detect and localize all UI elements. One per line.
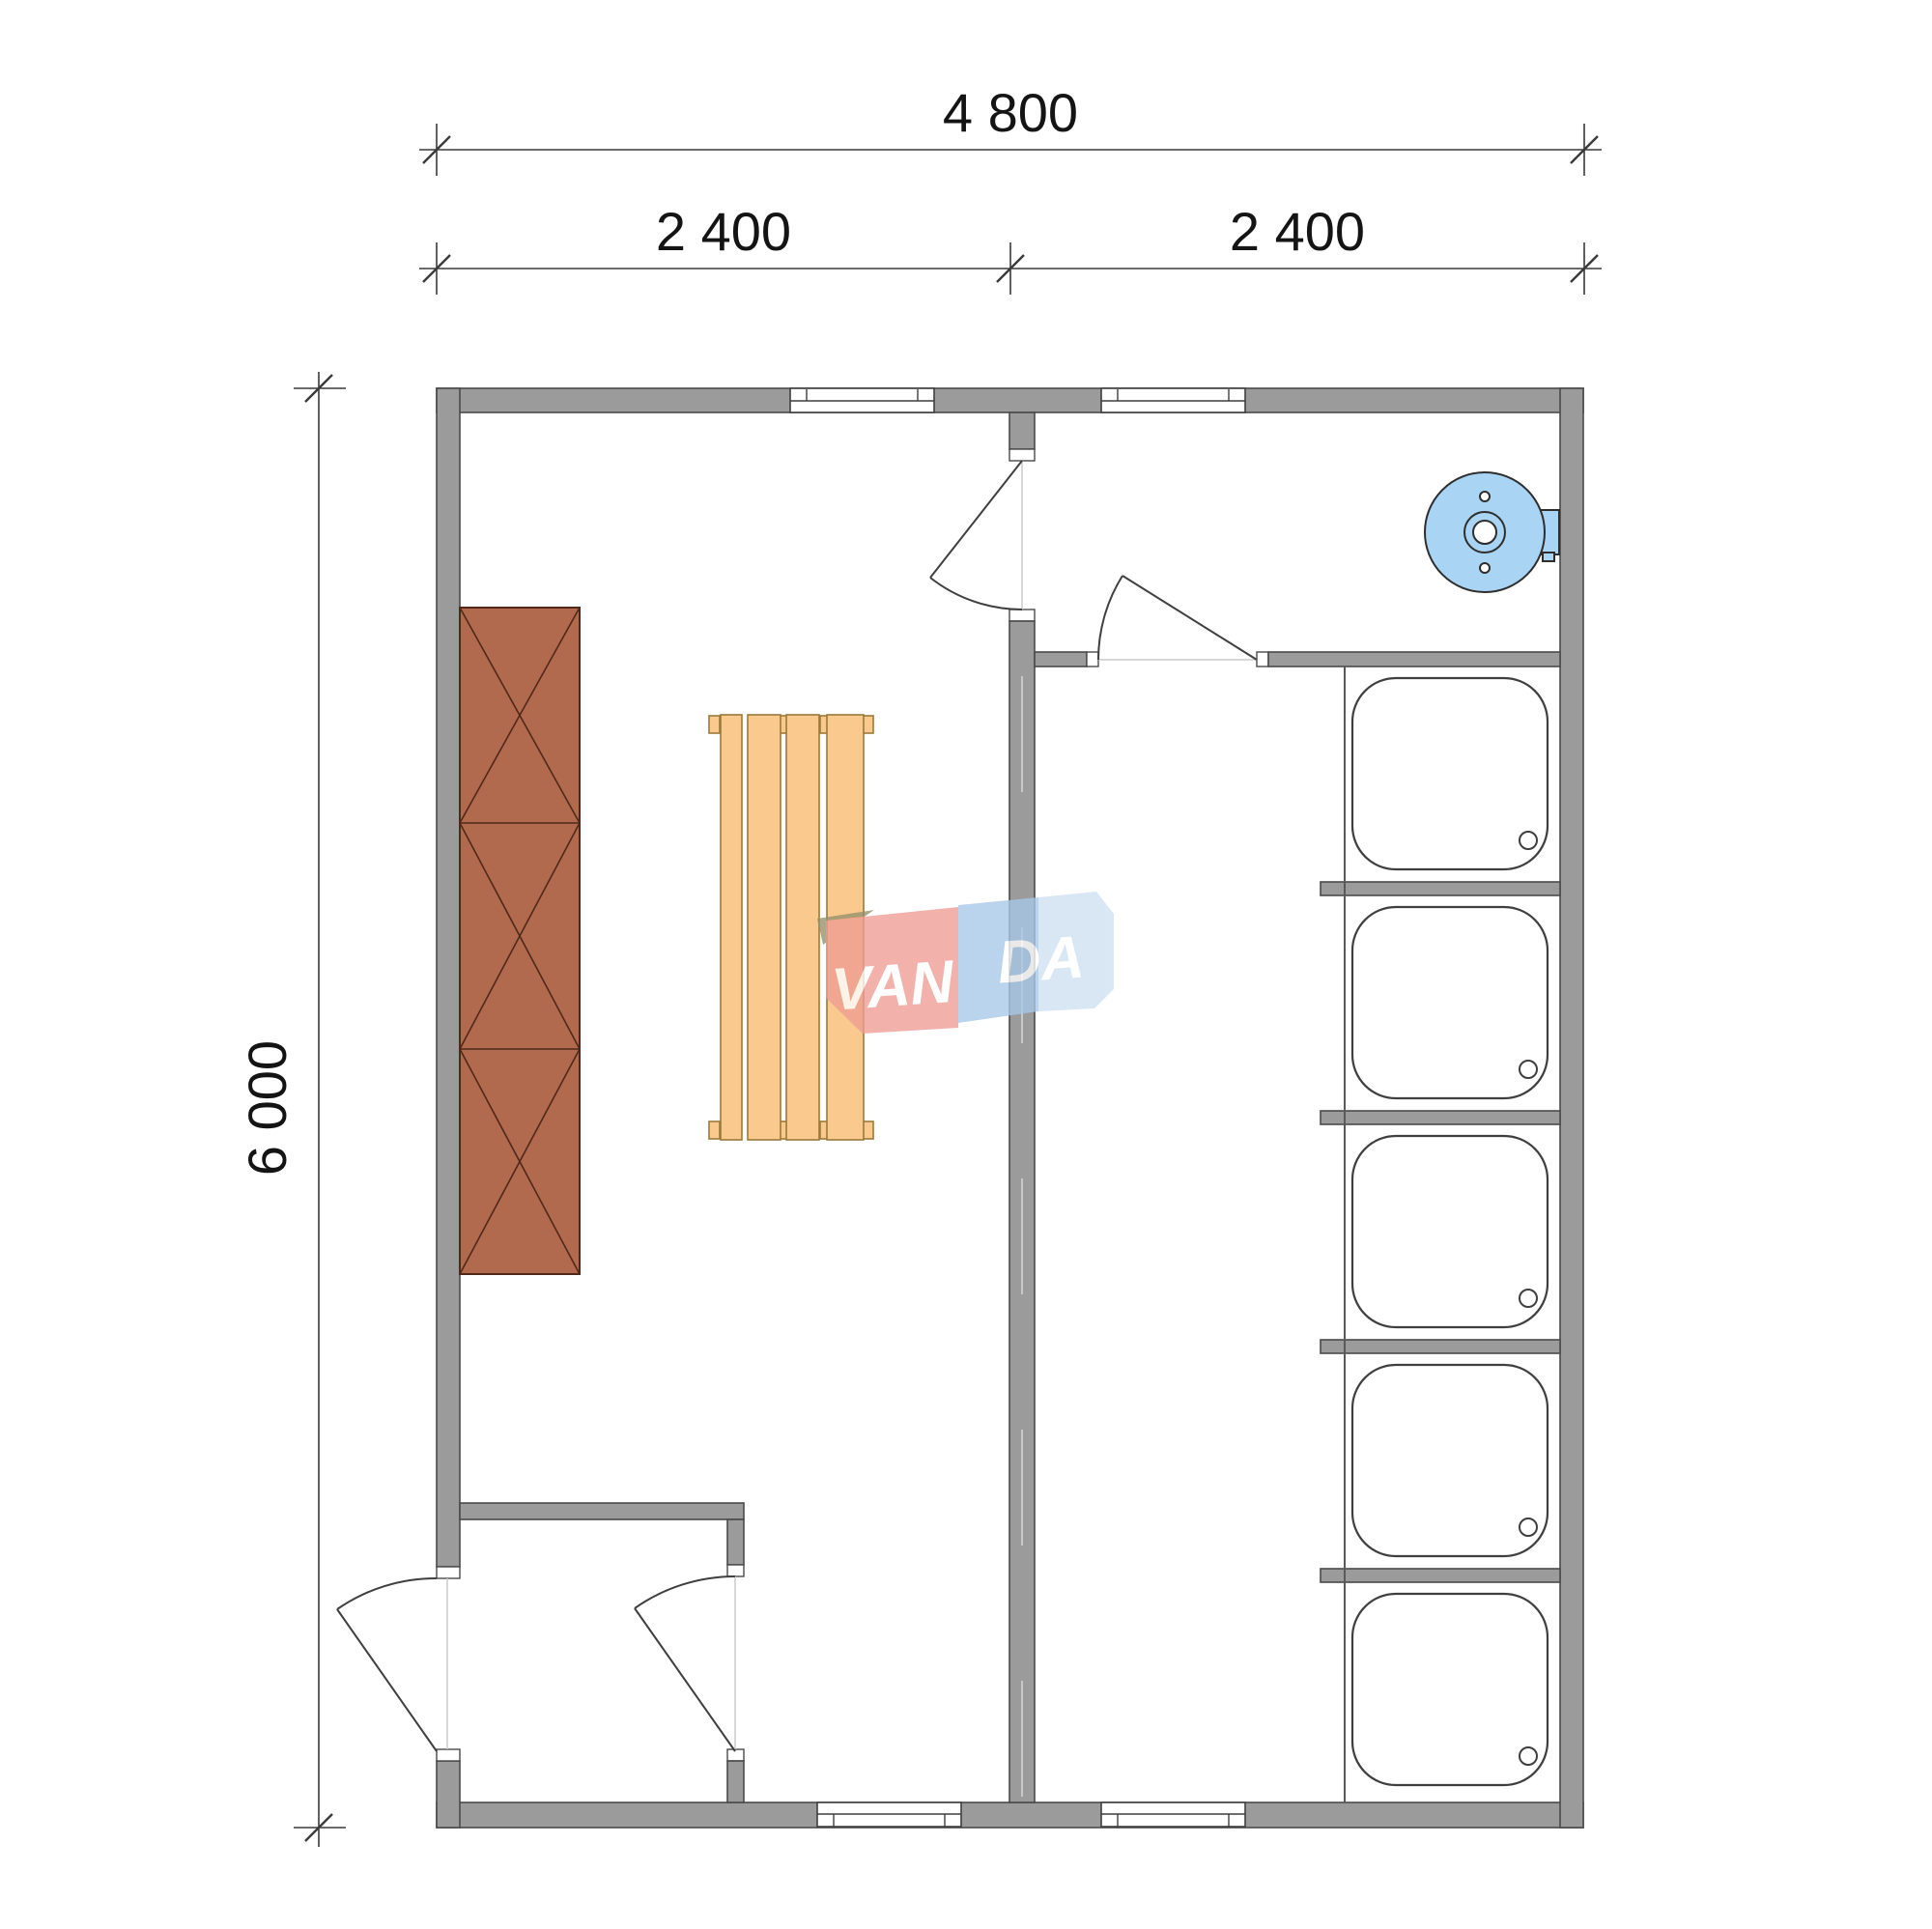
bench-support: [709, 716, 720, 733]
drain-icon: [1520, 1518, 1537, 1536]
tray-basin: [1352, 1136, 1548, 1327]
door-swing-arc: [635, 1576, 735, 1608]
watermark-text-right: DA: [995, 924, 1086, 997]
watermark-text-left: VAN: [830, 949, 957, 1024]
wall-right: [1560, 388, 1583, 1828]
dimension-label-left-bay: 2 400: [656, 201, 791, 262]
door-swing-arc: [337, 1578, 437, 1609]
door-entry-exterior: [337, 1578, 447, 1751]
dimension-side-total: 6 000: [237, 372, 346, 1847]
tray-basin: [1352, 678, 1548, 869]
tray-basin: [1352, 1594, 1548, 1785]
wall-vestibule-top: [460, 1503, 744, 1519]
window-top-left: [790, 388, 934, 412]
window-bottom-left: [817, 1802, 961, 1827]
dimension-label-right-bay: 2 400: [1230, 201, 1365, 262]
drain-icon: [1520, 1747, 1537, 1765]
dimension-top-bays: 2 400 2 400: [419, 201, 1602, 295]
dimension-label-total-width: 4 800: [943, 82, 1078, 143]
door-jamb: [437, 1567, 460, 1578]
wall-stub: [1035, 652, 1087, 667]
dimension-top-total: 4 800: [419, 82, 1602, 176]
shower-tray: [1352, 678, 1548, 869]
tray-basin: [1352, 1365, 1548, 1556]
watermark-logo: VAN DA: [817, 892, 1114, 1034]
shower-divider: [1321, 1340, 1560, 1353]
door-jamb: [1009, 449, 1035, 461]
tray-basin: [1352, 907, 1548, 1098]
heater-bracket-notch: [1543, 553, 1554, 561]
door-leaf: [1122, 576, 1257, 660]
window-bottom-right: [1101, 1802, 1245, 1827]
shower-stalls: [1352, 678, 1548, 1785]
cabinet: [460, 608, 580, 1274]
wall-center-stub-top: [1009, 412, 1035, 449]
wall-left-lower: [437, 1761, 460, 1828]
door-jamb: [727, 1565, 744, 1576]
heater-port: [1480, 492, 1490, 501]
shower-divider: [1321, 1111, 1560, 1124]
door-jamb: [1009, 610, 1035, 621]
water-heater: [1425, 472, 1559, 592]
bench-board: [786, 715, 819, 1140]
drain-icon: [1520, 1290, 1537, 1307]
door-sauna: [930, 461, 1022, 610]
bench-support: [709, 1121, 720, 1139]
floor-plan-page: 4 800 2 400 2 400 6 000: [0, 0, 1932, 1929]
door-leaf: [337, 1609, 437, 1751]
door-leaf: [635, 1608, 735, 1751]
shower-divider: [1321, 1569, 1560, 1582]
bench-board: [748, 715, 781, 1140]
door-entry-interior: [635, 1576, 735, 1751]
door-swing-arc: [930, 578, 1022, 610]
shower-divider: [1321, 882, 1560, 895]
door-jamb: [437, 1749, 460, 1761]
wall-top: [437, 388, 1583, 412]
door-jamb: [1087, 652, 1098, 667]
drain-icon: [1520, 1061, 1537, 1078]
wall-shower-top: [1268, 652, 1560, 667]
drain-icon: [1520, 832, 1537, 849]
heater-port: [1480, 563, 1490, 573]
wall-left-upper: [437, 388, 460, 1567]
dimension-label-depth: 6 000: [237, 1040, 298, 1176]
wall-bottom: [437, 1802, 1583, 1828]
door-leaf: [930, 461, 1022, 578]
heater-hub: [1473, 521, 1496, 544]
door-swing-arc: [1098, 576, 1122, 660]
wall-vestibule-right-lower: [727, 1761, 744, 1802]
bench-board: [721, 715, 742, 1140]
door-jamb: [1257, 652, 1268, 667]
shower-tray: [1352, 1594, 1548, 1785]
shower-tray: [1352, 1136, 1548, 1327]
door-jamb: [727, 1749, 744, 1761]
cabinet-body: [460, 608, 580, 1274]
floor-plan-canvas: 4 800 2 400 2 400 6 000: [0, 0, 1932, 1929]
shower-tray: [1352, 1365, 1548, 1556]
shower-tray: [1352, 907, 1548, 1098]
window-top-right: [1101, 388, 1245, 412]
door-shower-room: [1098, 576, 1257, 660]
wall-vestibule-right-upper: [727, 1519, 744, 1565]
